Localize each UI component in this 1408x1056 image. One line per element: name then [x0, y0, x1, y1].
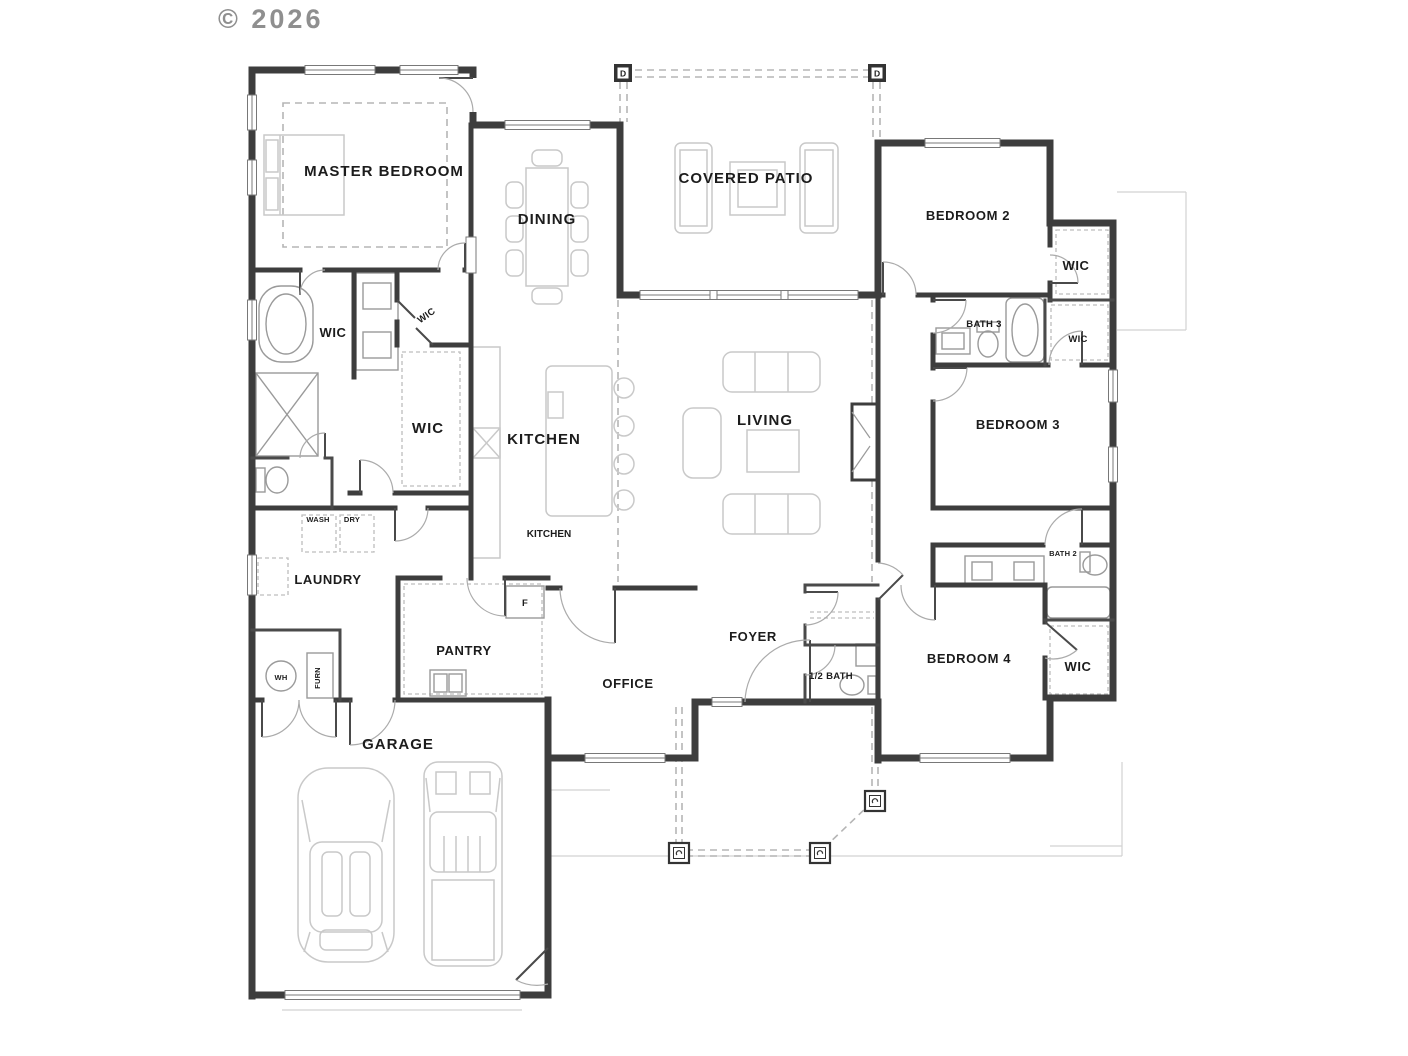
door	[933, 368, 967, 401]
floor-plan-svg: D D © 2026 MASTER BEDROOM DINING COV	[0, 0, 1408, 1056]
label-wic-master-3: WIC	[412, 420, 444, 437]
door	[883, 262, 916, 295]
door-angled	[397, 300, 433, 345]
dining-niche	[466, 237, 476, 273]
label-foyer: FOYER	[729, 629, 777, 644]
label-wic-bedroom2: WIC	[1062, 258, 1089, 273]
door	[299, 700, 336, 737]
master-tub	[259, 286, 313, 362]
half-bath-fixtures	[840, 644, 876, 695]
door	[467, 578, 505, 616]
post-label: D	[874, 69, 880, 79]
front-door	[745, 640, 810, 702]
label-bath-3: BATH 3	[966, 319, 1001, 330]
sedan-car	[298, 768, 394, 962]
label-dining: DINING	[518, 211, 577, 228]
door	[878, 563, 903, 600]
label-kitchen: KITCHEN	[507, 431, 581, 448]
master-vanity	[356, 273, 398, 370]
post-label: D	[620, 69, 626, 79]
window	[248, 160, 257, 195]
fixtures-layer	[256, 273, 1110, 698]
kitchen-counter	[471, 347, 500, 558]
door	[360, 460, 393, 493]
fireplace	[852, 404, 878, 480]
label-bedroom-4: BEDROOM 4	[927, 651, 1011, 666]
door	[1045, 509, 1082, 545]
label-bedroom-2: BEDROOM 2	[926, 208, 1010, 223]
door	[439, 78, 478, 112]
window	[305, 66, 375, 75]
label-office: OFFICE	[602, 676, 653, 691]
label-half-bath: 1/2 BATH	[809, 671, 853, 682]
door	[805, 592, 838, 625]
label-living: LIVING	[737, 412, 793, 429]
label-bath-2: BATH 2	[1049, 549, 1077, 558]
door	[395, 508, 428, 541]
patio-post-d: D	[614, 64, 632, 82]
bath3-fixtures	[936, 298, 1044, 362]
master-shower	[256, 373, 318, 456]
thin-walls	[252, 300, 1113, 702]
pantry-cabinet	[430, 670, 466, 696]
label-bedroom-3: BEDROOM 3	[976, 417, 1060, 432]
label-wic-master-2: WIC	[415, 306, 437, 326]
label-fridge: F	[522, 598, 528, 609]
truck-car	[424, 762, 502, 966]
porch-post	[865, 791, 885, 811]
window	[585, 754, 665, 763]
copyright-text: © 2026	[218, 4, 323, 34]
label-wic-bedroom4: WIC	[1064, 659, 1091, 674]
label-laundry: LAUNDRY	[294, 572, 361, 587]
door	[901, 585, 935, 620]
window	[1109, 447, 1118, 482]
master-toilet	[256, 467, 288, 493]
garage-door	[285, 991, 520, 1000]
label-covered-patio: COVERED PATIO	[679, 170, 814, 187]
floor-plan-page: { "copyright": "© 2026", "labels": { "ma…	[0, 0, 1408, 1056]
door	[300, 270, 325, 295]
label-wic-bedroom3: WIC	[1068, 334, 1087, 345]
window	[248, 95, 257, 130]
label-wic-master-1: WIC	[319, 325, 346, 340]
window	[248, 555, 257, 595]
window	[248, 300, 257, 340]
living-sofas	[683, 352, 820, 534]
door	[262, 700, 299, 737]
patio-furniture	[675, 143, 838, 233]
porch-posts	[669, 791, 885, 863]
window	[920, 754, 1010, 763]
window	[712, 698, 742, 707]
door	[516, 948, 548, 985]
window	[925, 139, 1000, 148]
label-kitchen-small: KITCHEN	[527, 529, 571, 540]
patio-slider-window	[640, 291, 858, 300]
label-water-heater: WH	[275, 673, 288, 682]
patio-posts: D D	[614, 64, 886, 82]
door	[560, 588, 615, 643]
label-master-bedroom: MASTER BEDROOM	[304, 163, 464, 180]
window	[400, 66, 458, 75]
label-furnace: FURN	[313, 667, 322, 689]
label-garage: GARAGE	[362, 736, 434, 753]
label-pantry: PANTRY	[436, 643, 492, 658]
porch-post	[810, 843, 830, 863]
porch-post	[669, 843, 689, 863]
label-dry: DRY	[344, 515, 360, 524]
window	[1109, 370, 1118, 402]
room-labels: © 2026 MASTER BEDROOM DINING COVERED PAT…	[218, 4, 1092, 753]
window	[505, 121, 590, 130]
patio-post-d: D	[868, 64, 886, 82]
label-wash: WASH	[306, 515, 329, 524]
